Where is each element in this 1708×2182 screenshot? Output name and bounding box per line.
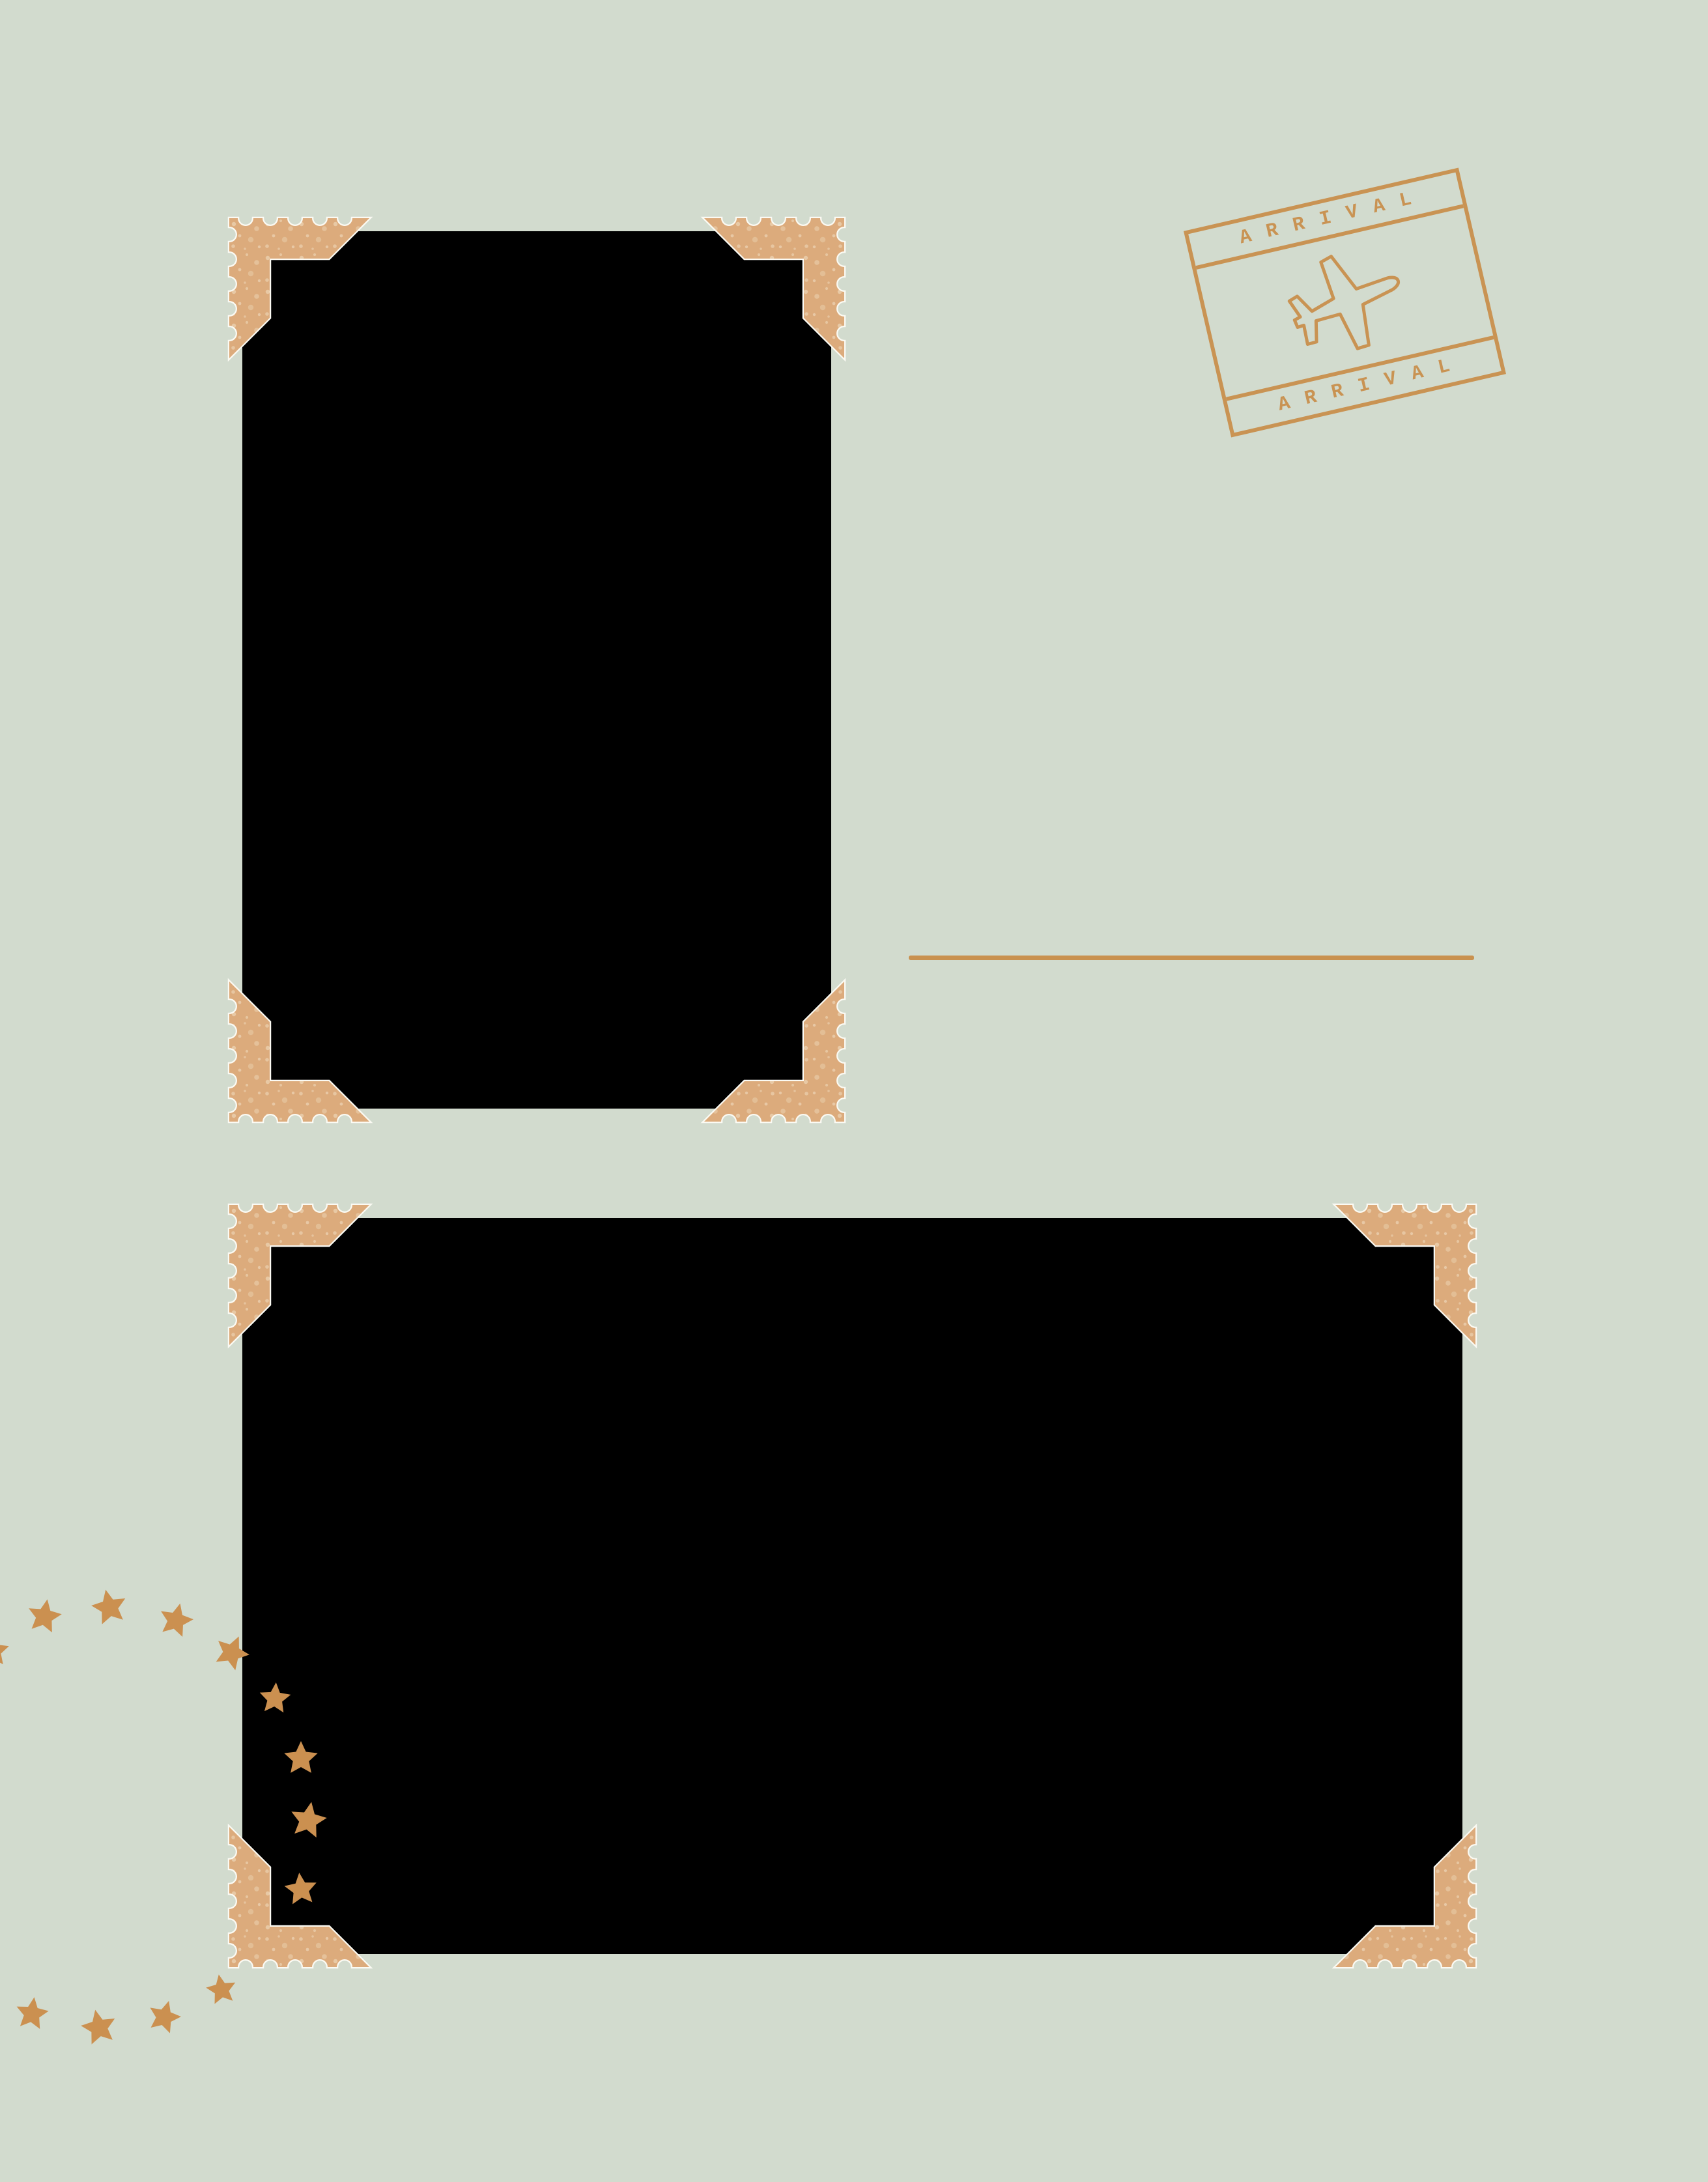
star-icon <box>13 1995 51 2033</box>
photo-placeholder-2 <box>242 1218 1462 1954</box>
stamp-corner-icon <box>1335 1205 1475 1346</box>
star-icon <box>282 1871 319 1908</box>
writing-line <box>909 956 1474 960</box>
arrival-stamp: ARRIVAL ARRIVAL <box>1184 167 1506 437</box>
star-icon <box>88 1586 131 1629</box>
airplane-icon <box>1266 227 1423 378</box>
star-icon <box>0 1635 10 1667</box>
stamp-corner-icon <box>229 981 370 1122</box>
photo-placeholder-1 <box>242 231 831 1109</box>
stamp-corner-icon <box>704 981 844 1122</box>
star-icon <box>78 2006 121 2049</box>
scrapbook-page: ARRIVAL ARRIVAL <box>0 0 1708 2182</box>
star-icon <box>283 1741 319 1776</box>
stamp-corner-icon <box>1335 1826 1475 1967</box>
star-icon <box>257 1681 292 1716</box>
star-icon <box>203 1972 240 2008</box>
star-icon <box>154 1599 197 1641</box>
stamp-corner-icon <box>229 1205 370 1346</box>
star-icon <box>24 1596 65 1637</box>
star-icon <box>286 1798 330 1842</box>
stamp-corner-icon <box>229 218 370 359</box>
stamp-corner-icon <box>704 218 844 359</box>
star-icon <box>143 1996 185 2038</box>
